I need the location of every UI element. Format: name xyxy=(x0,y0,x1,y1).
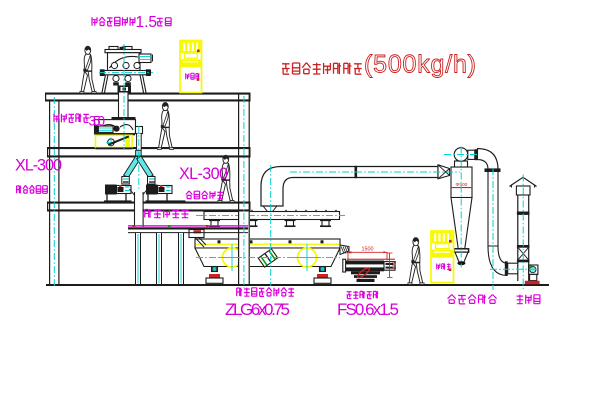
svg-text:XL-300: XL-300 xyxy=(179,165,228,183)
svg-text:1500: 1500 xyxy=(362,247,374,253)
svg-text:XL-300: XL-300 xyxy=(15,157,62,175)
svg-text:FS0.6x1.5: FS0.6x1.5 xyxy=(337,300,399,319)
svg-text:545: 545 xyxy=(390,261,396,270)
svg-text:(500kg/h): (500kg/h) xyxy=(364,51,476,79)
svg-text:ZLG6x0.75: ZLG6x0.75 xyxy=(225,300,290,319)
svg-text:350: 350 xyxy=(89,114,106,129)
svg-text:1.5: 1.5 xyxy=(136,14,158,31)
